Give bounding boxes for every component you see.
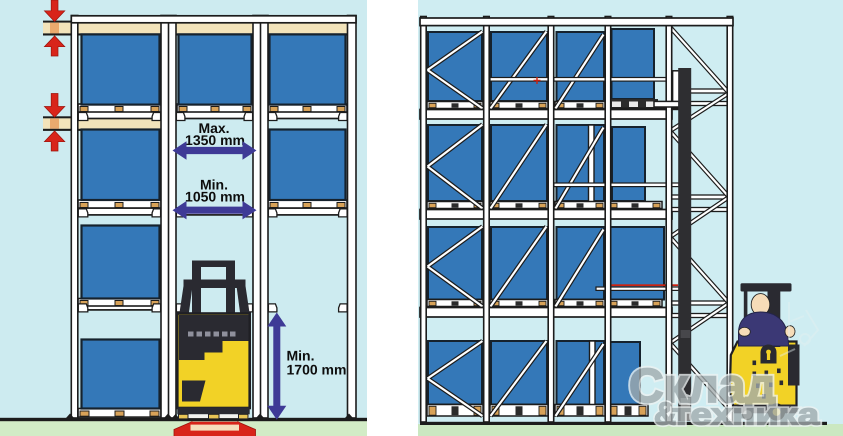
svg-text:1350 mm: 1350 mm [185,132,245,148]
svg-text:1700 mm: 1700 mm [287,362,347,378]
svg-text:1050 mm: 1050 mm [185,189,245,205]
svg-text:техника: техника [672,399,819,432]
